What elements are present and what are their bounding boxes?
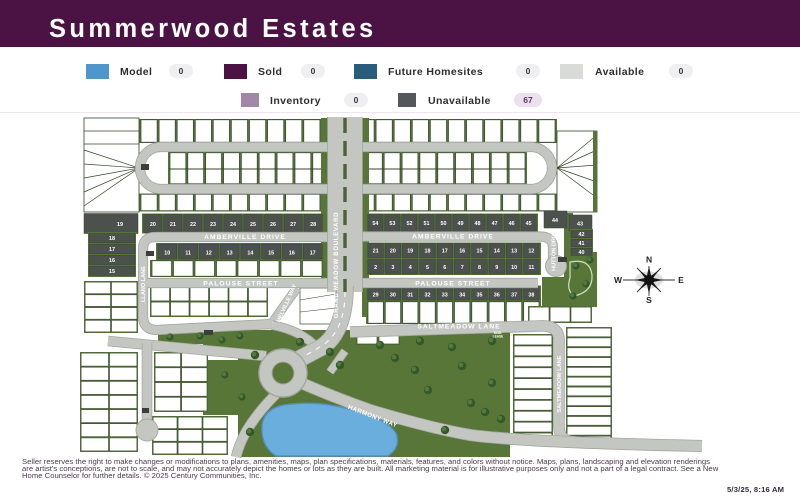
svg-text:32: 32 [425,293,431,299]
svg-text:LLANO LANE: LLANO LANE [141,266,147,302]
svg-text:LEASE: LEASE [493,335,504,339]
svg-text:49: 49 [458,221,464,227]
svg-text:PALOUSE STREET: PALOUSE STREET [203,281,278,288]
svg-text:12: 12 [206,251,212,257]
svg-text:52: 52 [407,221,413,227]
svg-text:45: 45 [526,221,532,227]
svg-text:S: S [646,295,652,305]
svg-text:40: 40 [579,250,585,256]
svg-text:W: W [614,275,623,285]
svg-text:35: 35 [477,293,483,299]
svg-text:38: 38 [528,293,534,299]
svg-text:5: 5 [426,265,429,271]
svg-text:47: 47 [492,221,498,227]
svg-text:28: 28 [310,222,316,228]
svg-text:33: 33 [442,293,448,299]
svg-text:29: 29 [373,293,379,299]
svg-text:14: 14 [247,251,253,257]
svg-text:43: 43 [577,222,583,228]
svg-text:13: 13 [511,249,517,255]
svg-text:27: 27 [290,222,296,228]
svg-text:20: 20 [390,249,396,255]
svg-text:46: 46 [509,221,515,227]
svg-text:AMBERVILLE DRIVE: AMBERVILLE DRIVE [412,234,494,241]
svg-text:2: 2 [374,265,377,271]
svg-text:30: 30 [390,293,396,299]
svg-text:N: N [646,255,652,265]
svg-text:11: 11 [185,251,191,257]
svg-text:42: 42 [579,232,585,238]
svg-text:21: 21 [373,249,379,255]
svg-text:4: 4 [409,265,412,271]
svg-text:22: 22 [190,222,196,228]
svg-text:48: 48 [475,221,481,227]
svg-text:17: 17 [109,247,115,253]
svg-text:8: 8 [478,265,481,271]
svg-text:18: 18 [425,249,431,255]
svg-text:21: 21 [170,222,176,228]
svg-text:53: 53 [389,221,395,227]
svg-text:AMBERVILLE DRIVE: AMBERVILLE DRIVE [204,234,286,241]
svg-text:10: 10 [164,251,170,257]
svg-text:6: 6 [443,265,446,271]
svg-text:16: 16 [109,258,115,264]
svg-text:17: 17 [310,251,316,257]
svg-text:44: 44 [552,218,558,224]
svg-text:26: 26 [270,222,276,228]
svg-text:15: 15 [268,251,274,257]
svg-text:MELVILLE WAY: MELVILLE WAY [276,283,298,323]
svg-text:20: 20 [150,222,156,228]
svg-text:24: 24 [230,222,236,228]
svg-text:11: 11 [529,265,535,271]
svg-text:19: 19 [117,222,123,228]
svg-text:36: 36 [494,293,500,299]
svg-text:16: 16 [459,249,465,255]
svg-text:41: 41 [579,241,585,247]
svg-text:SALTMEADOW LANE: SALTMEADOW LANE [417,324,500,331]
svg-text:18: 18 [109,236,115,242]
svg-text:15: 15 [109,269,115,275]
svg-text:SALTMEADOW LANE: SALTMEADOW LANE [557,355,563,412]
svg-text:10: 10 [511,265,517,271]
svg-text:13: 13 [227,251,233,257]
svg-text:25: 25 [250,222,256,228]
svg-text:GRAND MEADOW BOULEVARD: GRAND MEADOW BOULEVARD [334,212,340,318]
svg-text:37: 37 [511,293,517,299]
svg-text:PALOUSE STREET: PALOUSE STREET [415,281,490,288]
svg-text:54: 54 [372,221,378,227]
svg-text:12: 12 [528,249,534,255]
svg-text:51: 51 [424,221,430,227]
svg-text:23: 23 [210,222,216,228]
svg-text:15: 15 [477,249,483,255]
svg-text:16: 16 [289,251,295,257]
svg-text:19: 19 [407,249,413,255]
svg-text:31: 31 [407,293,413,299]
svg-text:14: 14 [494,249,500,255]
svg-text:50: 50 [441,221,447,227]
svg-text:9: 9 [495,265,498,271]
svg-text:3: 3 [391,265,394,271]
svg-text:7: 7 [461,265,464,271]
svg-text:E: E [678,275,684,285]
svg-text:34: 34 [459,293,465,299]
svg-text:17: 17 [442,249,448,255]
svg-text:HUTTON DRIVE: HUTTON DRIVE [552,229,558,271]
